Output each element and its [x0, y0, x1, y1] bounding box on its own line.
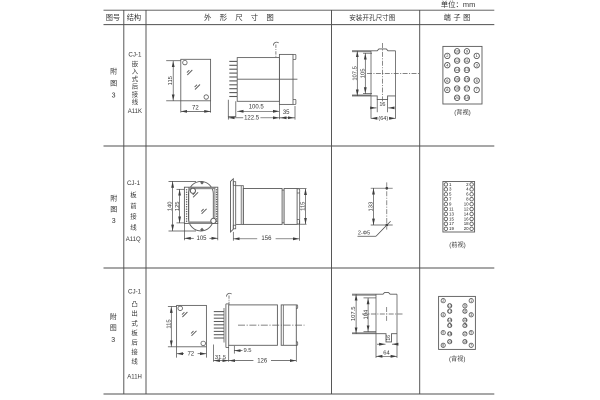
svg-text:126: 126	[257, 358, 268, 364]
svg-text:9: 9	[464, 304, 466, 308]
svg-text:16: 16	[455, 76, 459, 81]
svg-text:12: 12	[448, 309, 452, 313]
svg-text:3: 3	[476, 62, 478, 67]
svg-text:72: 72	[187, 351, 194, 357]
svg-text:13: 13	[465, 67, 469, 72]
svg-text:(前视): (前视)	[449, 241, 466, 249]
svg-text:(背视): (背视)	[454, 108, 471, 116]
svg-text:14: 14	[448, 318, 452, 322]
svg-text:后: 后	[131, 337, 138, 346]
svg-text:8: 8	[442, 343, 444, 347]
svg-text:线: 线	[131, 356, 138, 365]
svg-text:20: 20	[464, 226, 469, 231]
svg-text:图: 图	[110, 324, 117, 332]
svg-text:104: 104	[363, 309, 369, 319]
svg-text:线: 线	[130, 223, 137, 232]
svg-text:19: 19	[465, 95, 469, 100]
svg-text:附: 附	[110, 312, 117, 321]
svg-text:19: 19	[449, 226, 454, 231]
svg-text:附: 附	[110, 194, 117, 203]
svg-text:CJ-1: CJ-1	[128, 52, 142, 59]
svg-text:11: 11	[465, 58, 469, 63]
svg-text:72: 72	[192, 106, 199, 112]
svg-text:17: 17	[463, 332, 467, 336]
svg-text:18: 18	[455, 86, 459, 91]
svg-text:10: 10	[448, 304, 452, 308]
svg-text:附: 附	[110, 66, 117, 75]
svg-text:3: 3	[111, 337, 115, 344]
svg-text:(背视): (背视)	[449, 355, 466, 363]
svg-text:接: 接	[131, 347, 138, 356]
svg-text:板: 板	[131, 328, 138, 337]
svg-text:凸: 凸	[131, 300, 137, 308]
svg-text:2-Φ5: 2-Φ5	[358, 230, 370, 236]
svg-text:结构: 结构	[127, 13, 141, 22]
svg-text:15: 15	[463, 324, 467, 328]
svg-text:9.5: 9.5	[243, 348, 251, 354]
svg-text:5: 5	[470, 331, 472, 335]
svg-text:嵌: 嵌	[132, 60, 139, 68]
svg-text:18: 18	[448, 332, 452, 336]
svg-text:CJ-1: CJ-1	[127, 180, 141, 187]
svg-text:接: 接	[132, 89, 139, 98]
svg-text:CJ-1: CJ-1	[128, 289, 142, 296]
svg-text:16: 16	[448, 324, 452, 328]
svg-text:122.5: 122.5	[244, 115, 260, 121]
svg-text:图: 图	[110, 206, 117, 214]
svg-text:35: 35	[283, 110, 290, 116]
svg-text:16: 16	[386, 335, 392, 341]
svg-text:105: 105	[196, 236, 207, 242]
svg-text:A11Q: A11Q	[126, 237, 141, 243]
svg-text:31.5: 31.5	[215, 355, 226, 361]
svg-text:15: 15	[465, 76, 469, 81]
svg-text:接: 接	[130, 212, 137, 221]
svg-text:6: 6	[442, 331, 444, 335]
svg-text:图: 图	[110, 79, 117, 87]
svg-text:105: 105	[361, 69, 367, 79]
svg-text:后: 后	[132, 82, 139, 91]
svg-text:3: 3	[112, 92, 116, 99]
svg-text:A11K: A11K	[128, 109, 142, 115]
svg-text:7: 7	[476, 87, 478, 92]
svg-text:125: 125	[175, 201, 181, 211]
svg-text:115: 115	[301, 202, 307, 211]
svg-text:19: 19	[463, 340, 467, 344]
svg-text:安装开孔尺寸图: 安装开孔尺寸图	[349, 13, 396, 22]
svg-text:外形尺寸图: 外形尺寸图	[204, 13, 282, 22]
svg-text:7: 7	[470, 343, 472, 347]
svg-text:140: 140	[168, 201, 174, 211]
svg-text:3: 3	[470, 313, 472, 317]
svg-text:13: 13	[463, 318, 467, 322]
svg-text:端子图: 端子图	[444, 13, 473, 22]
svg-text:5: 5	[476, 78, 478, 83]
svg-text:1: 1	[470, 299, 472, 303]
svg-text:线: 线	[132, 97, 139, 106]
svg-text:出: 出	[131, 309, 137, 318]
svg-text:1: 1	[476, 53, 478, 58]
svg-text:板: 板	[130, 190, 137, 199]
svg-text:4: 4	[442, 313, 444, 317]
svg-text:式: 式	[131, 318, 138, 327]
svg-text:式: 式	[132, 74, 139, 83]
svg-text:3: 3	[112, 218, 116, 225]
svg-text:11: 11	[463, 309, 467, 313]
svg-text:16: 16	[379, 102, 385, 108]
svg-text:前: 前	[130, 201, 137, 210]
svg-text:入: 入	[132, 68, 139, 75]
svg-text:17: 17	[465, 86, 469, 91]
svg-text:图号: 图号	[106, 13, 120, 22]
svg-text:156: 156	[261, 236, 272, 242]
svg-text:107.5: 107.5	[352, 66, 358, 81]
svg-text:20: 20	[448, 340, 452, 344]
svg-text:(64): (64)	[378, 116, 388, 122]
svg-text:100.5: 100.5	[249, 104, 265, 110]
svg-text:A11H: A11H	[127, 374, 142, 380]
svg-text:107.5: 107.5	[351, 307, 357, 322]
svg-text:2: 2	[442, 299, 444, 303]
svg-text:115: 115	[168, 76, 174, 85]
svg-text:2: 2	[446, 53, 448, 58]
svg-text:8: 8	[446, 87, 448, 92]
svg-text:115: 115	[166, 319, 172, 328]
svg-text:133: 133	[369, 202, 375, 212]
svg-text:12: 12	[455, 58, 459, 63]
svg-text:9: 9	[466, 49, 468, 54]
svg-text:单位：mm: 单位：mm	[441, 0, 476, 9]
svg-text:6: 6	[446, 78, 448, 83]
svg-text:64: 64	[383, 351, 390, 357]
